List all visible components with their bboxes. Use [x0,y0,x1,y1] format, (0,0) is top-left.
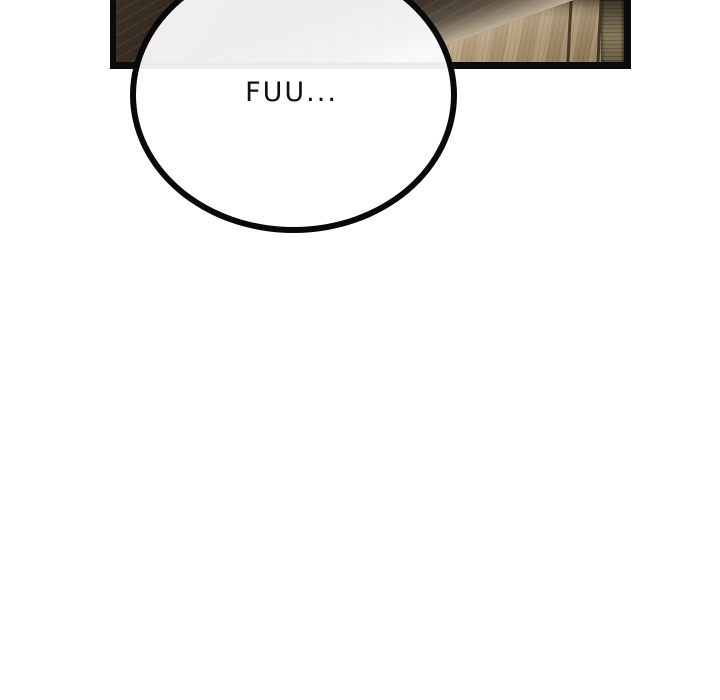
speech-bubble-text: FUU... [134,77,449,108]
comic-page: FUU... [0,0,720,700]
speech-bubble: FUU... [130,0,457,233]
floor-plank-seam [566,0,572,62]
floor-edge-strip [601,0,624,62]
